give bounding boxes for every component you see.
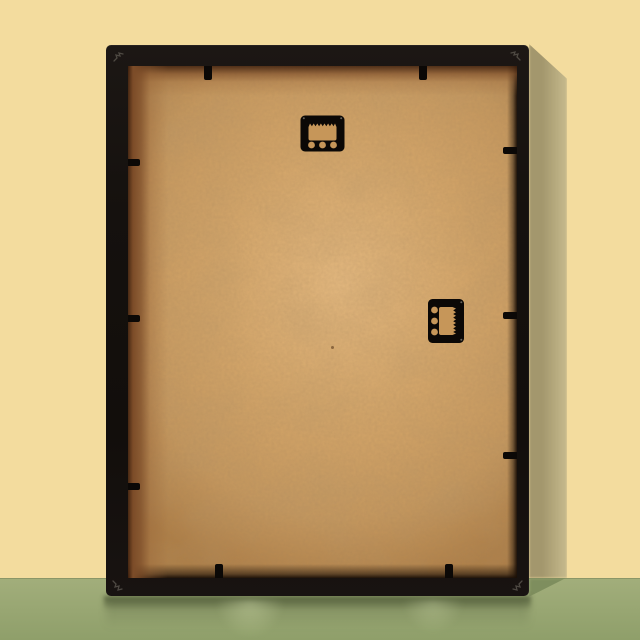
backing-board [128,66,517,578]
v-nail-mark-top-right [506,50,522,62]
reflection-highlight [402,600,464,634]
retainer-clip-right-2 [503,312,517,319]
retainer-clip-bottom-left [215,564,223,578]
retainer-clip-top-right [419,66,427,80]
v-nail-mark-bottom-right [508,578,524,592]
retainer-clip-bottom-right [445,564,453,578]
retainer-clip-left-1 [128,159,140,166]
reflection-highlight [215,600,285,638]
photo-frame-back-scene [0,0,640,640]
sawtooth-hanger-top [300,114,345,152]
retainer-clip-right-3 [503,452,517,459]
retainer-clip-top-left [204,66,212,80]
sawtooth-hanger-right [428,299,466,344]
retainer-clip-left-2 [128,315,140,322]
v-nail-mark-top-left [112,51,128,63]
picture-frame-back [106,45,529,596]
v-nail-mark-bottom-left [111,578,127,592]
retainer-clip-right-1 [503,147,517,154]
frame-cast-shadow-wall [529,44,567,578]
board-speck [331,346,334,349]
retainer-clip-left-3 [128,483,140,490]
frame-contact-shadow [104,596,531,610]
